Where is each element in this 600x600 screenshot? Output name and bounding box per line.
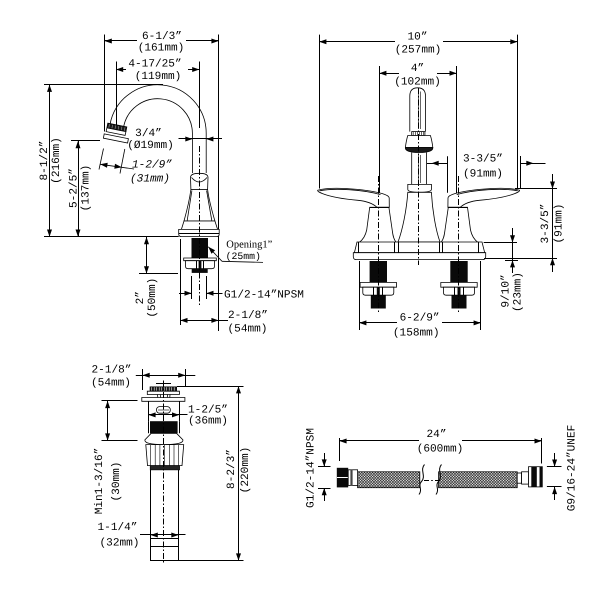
svg-text:(54mm): (54mm) — [228, 322, 268, 335]
svg-text:(600mm): (600mm) — [417, 442, 464, 455]
svg-text:(32mm): (32mm) — [100, 536, 140, 549]
svg-text:(137mm): (137mm) — [79, 165, 92, 212]
svg-text:(216mm): (216mm) — [50, 137, 63, 184]
svg-text:4-17/25”: 4-17/25” — [128, 57, 181, 70]
svg-text:(50mm): (50mm) — [146, 278, 159, 318]
svg-text:(54mm): (54mm) — [91, 376, 131, 389]
svg-text:(25mm): (25mm) — [226, 251, 261, 262]
svg-text:9/10”: 9/10” — [499, 274, 512, 307]
svg-text:24”: 24” — [427, 428, 447, 441]
svg-text:(31mm): (31mm) — [130, 172, 170, 185]
svg-text:6-2/9”: 6-2/9” — [400, 311, 440, 324]
svg-text:(30mm): (30mm) — [110, 462, 123, 502]
svg-text:2-1/8”: 2-1/8” — [228, 309, 268, 322]
svg-text:(220mm): (220mm) — [239, 447, 252, 494]
svg-text:3/4”: 3/4” — [135, 127, 162, 140]
svg-text:5-2/5”: 5-2/5” — [67, 168, 80, 208]
svg-text:2-1/8”: 2-1/8” — [92, 363, 132, 376]
svg-text:G1/2-14”NPSM: G1/2-14”NPSM — [304, 428, 317, 508]
svg-text:2”: 2” — [134, 291, 147, 304]
svg-text:1-2/9”: 1-2/9” — [132, 158, 172, 171]
svg-text:G9/16-24”UNEF: G9/16-24”UNEF — [566, 425, 579, 512]
svg-text:4”: 4” — [411, 62, 424, 75]
svg-text:3-3/5”: 3-3/5” — [463, 152, 503, 165]
svg-text:(161mm): (161mm) — [138, 42, 185, 55]
svg-text:(91mm): (91mm) — [463, 167, 503, 180]
svg-text:(257mm): (257mm) — [395, 43, 442, 56]
svg-text:(158mm): (158mm) — [393, 326, 440, 339]
svg-text:(23mm): (23mm) — [511, 272, 524, 312]
svg-text:G1/2-14”NPSM: G1/2-14”NPSM — [224, 288, 304, 301]
svg-text:(91mm): (91mm) — [552, 204, 565, 244]
svg-text:(119mm): (119mm) — [135, 70, 182, 83]
svg-text:8-1/2”: 8-1/2” — [38, 141, 51, 181]
svg-text:(102mm): (102mm) — [394, 75, 441, 88]
svg-text:(Ø19mm): (Ø19mm) — [127, 139, 174, 152]
svg-text:3-3/5”: 3-3/5” — [539, 204, 552, 244]
svg-text:Min1-3/16”: Min1-3/16” — [93, 448, 106, 515]
svg-text:1-1/4”: 1-1/4” — [98, 521, 138, 534]
svg-text:Opening1”: Opening1” — [226, 240, 272, 251]
svg-text:8-2/3”: 8-2/3” — [225, 449, 238, 489]
svg-text:10”: 10” — [408, 31, 428, 44]
svg-text:(36mm): (36mm) — [188, 414, 228, 427]
svg-text:6-1/3”: 6-1/3” — [142, 30, 182, 43]
